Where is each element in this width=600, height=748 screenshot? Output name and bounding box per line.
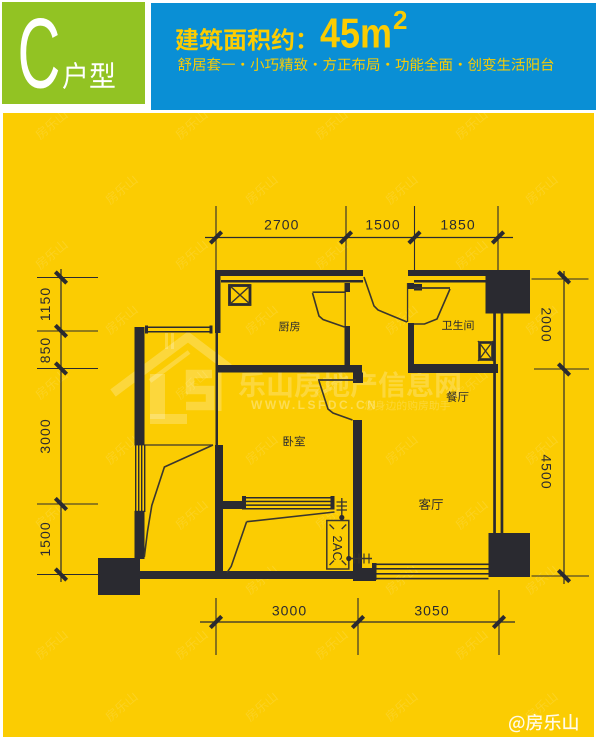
svg-text:WWW.LSFDC.CN: WWW.LSFDC.CN	[251, 398, 378, 412]
svg-text:1850: 1850	[440, 217, 475, 233]
svg-text:2AC: 2AC	[330, 536, 344, 562]
svg-text:850: 850	[37, 337, 53, 364]
svg-text:C: C	[18, 0, 61, 109]
svg-text:4500: 4500	[539, 454, 555, 489]
svg-text:3000: 3000	[272, 603, 307, 619]
svg-text:2000: 2000	[539, 307, 555, 342]
svg-text:1150: 1150	[37, 287, 53, 321]
svg-text:3000: 3000	[37, 418, 53, 453]
svg-text:2: 2	[393, 5, 407, 35]
svg-text:1500: 1500	[365, 217, 400, 233]
svg-text:1500: 1500	[37, 521, 53, 556]
svg-text:2700: 2700	[264, 217, 299, 233]
svg-text:45m: 45m	[320, 9, 392, 56]
svg-text:3050: 3050	[414, 603, 449, 619]
